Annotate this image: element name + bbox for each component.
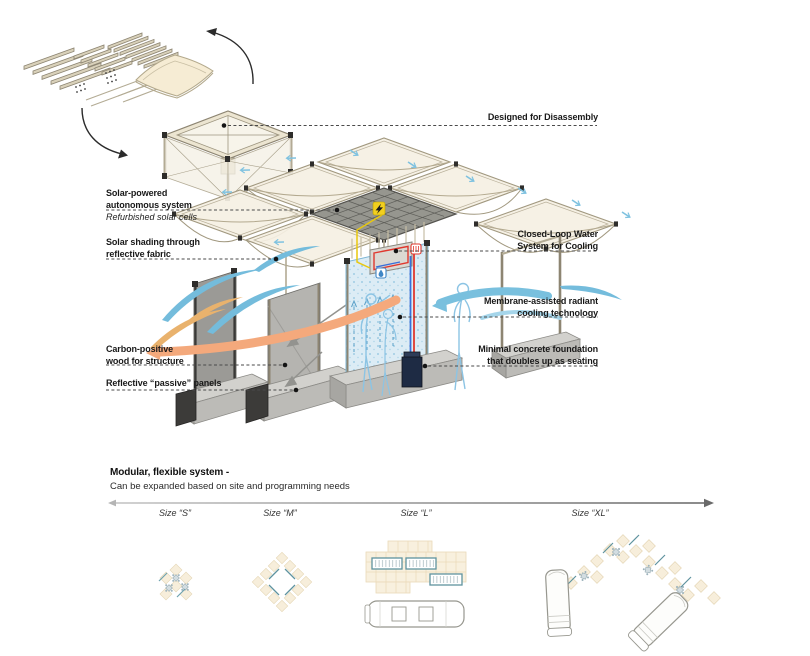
annotation-membrane: Membrane-assisted radiant cooling techno… — [484, 295, 598, 320]
annotation-line: Minimal concrete foundation — [478, 343, 598, 355]
annotation-foundation: Minimal concrete foundation that doubles… — [478, 343, 598, 368]
water-badge — [376, 268, 386, 278]
annotation-line: Carbon-positive — [106, 343, 184, 355]
plan-size-m — [252, 552, 312, 612]
bus-plan-vertical — [544, 569, 571, 636]
footer-title: Modular, flexible system - — [110, 467, 229, 478]
annotation-line: Designed for Disassembly — [488, 111, 598, 123]
heat-badge — [411, 244, 421, 254]
storage-tank — [402, 352, 422, 387]
annotation-disassembly: Designed for Disassembly — [488, 111, 598, 123]
annotation-line: cooling technology — [484, 307, 598, 319]
size-label-m: Size “M” — [263, 508, 297, 518]
exploded-parts — [24, 33, 213, 106]
electricity-badge — [373, 202, 385, 215]
annotation-line: Membrane-assisted radiant — [484, 295, 598, 307]
illustration — [0, 0, 810, 656]
annotation-line: Solar shading through — [106, 236, 200, 248]
bus-plan — [365, 601, 464, 627]
plan-size-s — [159, 564, 192, 600]
bus-plan-rotated — [627, 589, 691, 652]
disassembly-arrow-up — [206, 28, 253, 84]
annotation-reflective-panels: Reflective “passive” panels — [106, 377, 221, 389]
annotation-line: Solar-powered — [106, 187, 192, 199]
annotation-solar-system: Solar-powered autonomous system — [106, 187, 192, 212]
size-label-xl: Size “XL” — [571, 508, 608, 518]
annotation-line: reflective fabric — [106, 248, 200, 260]
plan-size-l — [365, 541, 466, 627]
annotation-line: Closed-Loop Water — [517, 228, 598, 240]
size-label-l: Size “L” — [400, 508, 431, 518]
annotation-line: System for Cooling — [517, 240, 598, 252]
annotation-line: autonomous system — [106, 199, 192, 211]
annotation-closed-loop: Closed-Loop Water System for Cooling — [517, 228, 598, 253]
size-label-s: Size “S” — [159, 508, 191, 518]
footer-subtitle: Can be expanded based on site and progra… — [110, 481, 350, 492]
annotation-solar-shading: Solar shading through reflective fabric — [106, 236, 200, 261]
annotation-solar-note: Refurbished solar cells — [106, 212, 197, 222]
assembly-arrow-down — [82, 108, 128, 159]
annotation-carbon-wood: Carbon-positive wood for structure — [106, 343, 184, 368]
annotation-line: Reflective “passive” panels — [106, 377, 221, 389]
expansion-axis — [108, 499, 714, 507]
annotation-line: wood for structure — [106, 355, 184, 367]
diagram-canvas: Solar-powered autonomous system Refurbis… — [0, 0, 810, 656]
plan-size-xl — [544, 535, 720, 653]
annotation-line: that doubles up as seating — [478, 355, 598, 367]
